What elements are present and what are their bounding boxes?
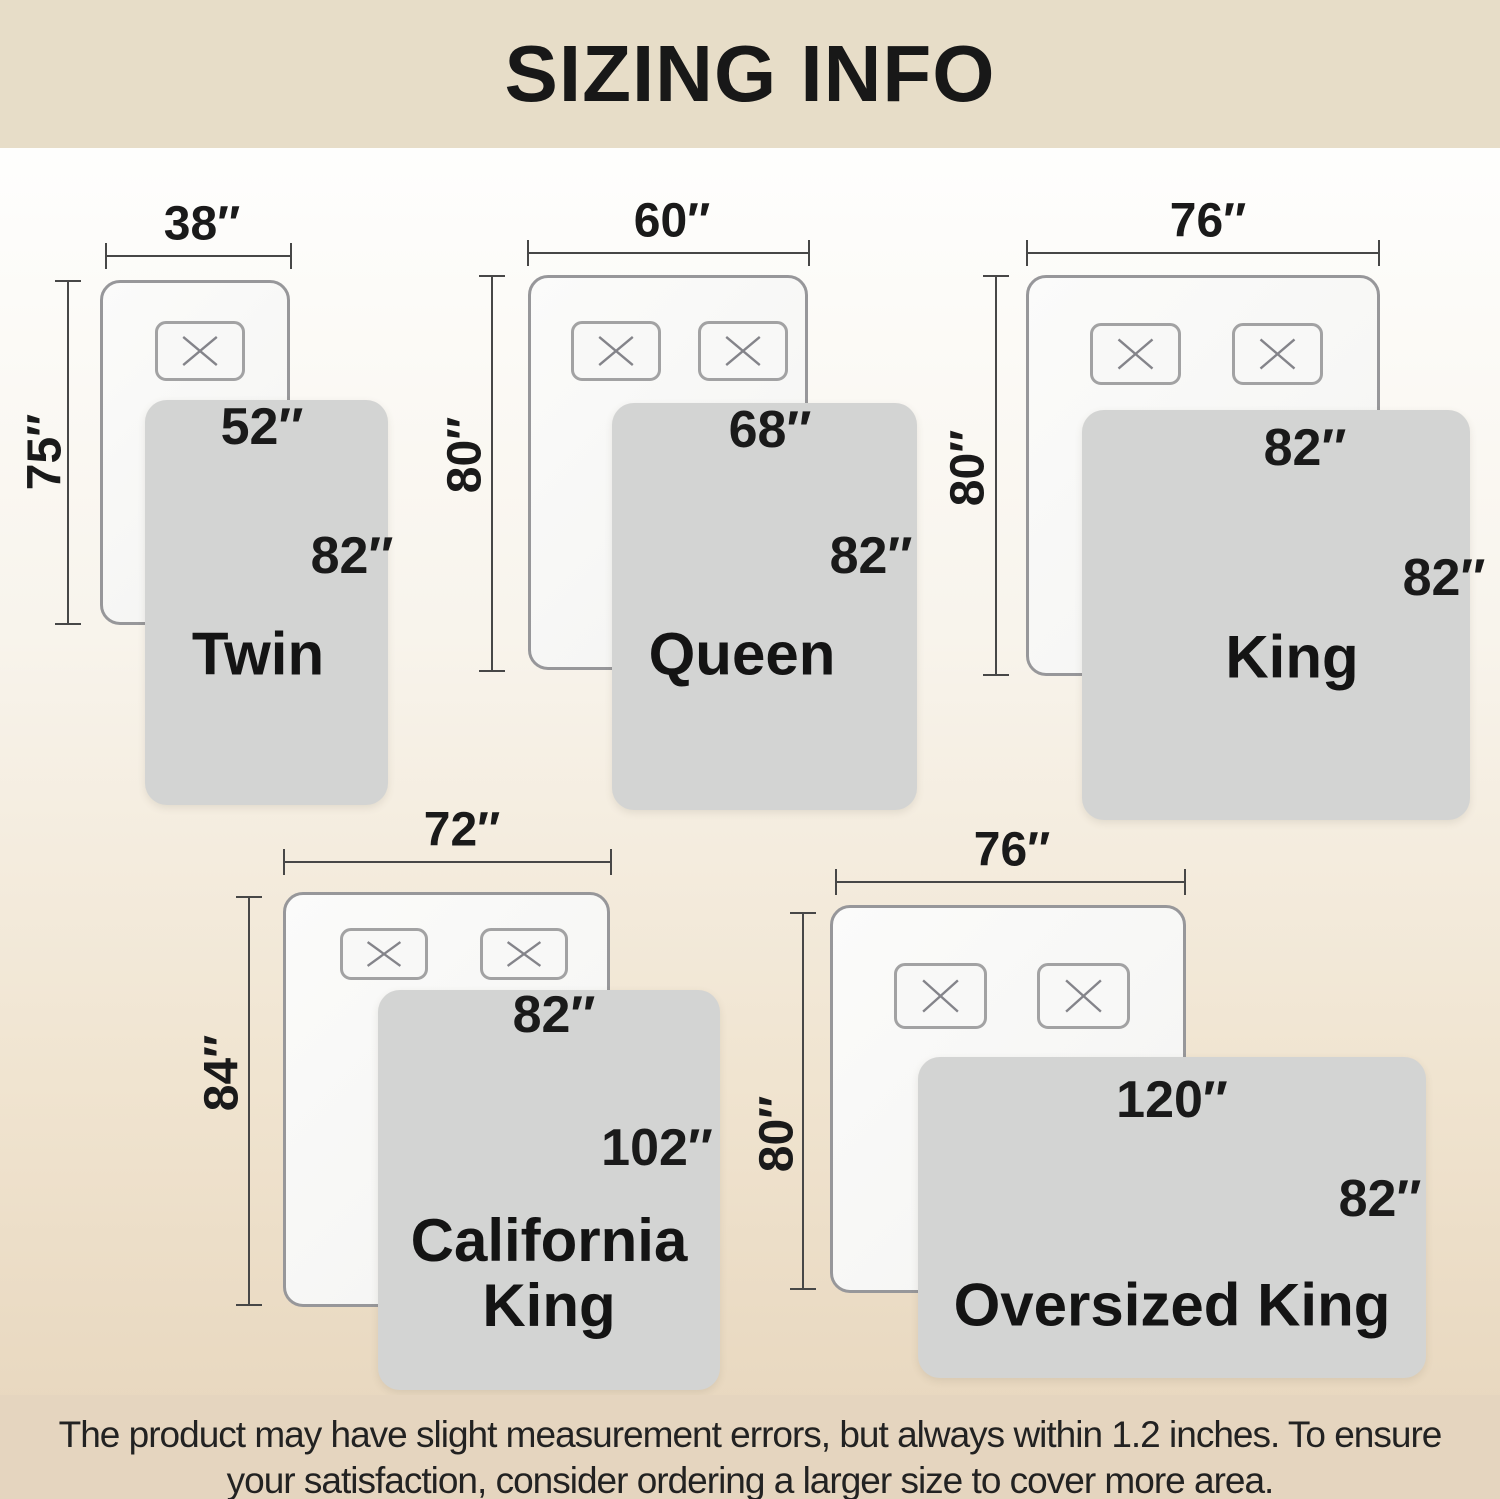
blanket-width-label: 82″ — [513, 985, 596, 1045]
dimension-tick — [55, 623, 81, 625]
bed-name-label: Twin — [192, 623, 324, 688]
blanket-width-label: 120″ — [1116, 1070, 1228, 1130]
dimension-rule — [283, 861, 612, 863]
blanket-width-label: 68″ — [729, 400, 812, 460]
mattress-length-label: 84″ — [195, 1035, 250, 1111]
dimension-tick — [983, 674, 1009, 676]
mattress-length-label: 80″ — [438, 417, 493, 493]
mattress-width-label: 72″ — [424, 803, 500, 858]
dimension-tick — [290, 243, 292, 269]
dimension-rule — [105, 255, 292, 257]
pillow-icon — [894, 963, 987, 1029]
blanket-length-label: 82″ — [1403, 548, 1486, 608]
blanket-length-label: 82″ — [311, 526, 394, 586]
blanket-width-label: 82″ — [1264, 418, 1347, 478]
mattress-length-label: 80″ — [941, 430, 996, 506]
footer-banner: The product may have slight measurement … — [0, 1395, 1500, 1499]
bed-name-label: King — [1225, 626, 1358, 691]
pillow-icon — [155, 321, 245, 381]
mattress-length-label: 80″ — [750, 1096, 805, 1172]
blanket-width-label: 52″ — [221, 397, 304, 457]
pillow-icon — [340, 928, 428, 980]
dimension-tick — [236, 1304, 262, 1306]
dimension-rule — [527, 252, 810, 254]
page-title: SIZING INFO — [505, 28, 996, 120]
dimension-tick — [790, 1288, 816, 1290]
pillow-icon — [480, 928, 568, 980]
bed-name-label: Oversized King — [937, 1274, 1407, 1339]
mattress-width-label: 38″ — [164, 197, 240, 252]
mattress-width-label: 76″ — [974, 823, 1050, 878]
blanket-length-label: 102″ — [601, 1118, 713, 1178]
blanket-length-label: 82″ — [1339, 1169, 1422, 1229]
pillow-icon — [1232, 323, 1323, 385]
mattress-length-label: 75″ — [18, 414, 73, 490]
dimension-tick — [1378, 240, 1380, 266]
bed-name-label: Queen — [649, 623, 836, 688]
pillow-icon — [1090, 323, 1181, 385]
blanket-shape — [612, 403, 917, 810]
mattress-width-label: 60″ — [634, 194, 710, 249]
dimension-tick — [808, 240, 810, 266]
dimension-tick — [610, 849, 612, 875]
disclaimer-text: The product may have slight measurement … — [40, 1412, 1460, 1499]
sizing-infographic: SIZING INFO 38″ 75″ 52″ 82″ Twin — [0, 0, 1500, 1499]
dimension-tick — [1184, 869, 1186, 895]
dimension-tick — [479, 670, 505, 672]
pillow-icon — [571, 321, 661, 381]
mattress-width-label: 76″ — [1170, 194, 1246, 249]
dimension-rule — [1026, 252, 1380, 254]
header-banner: SIZING INFO — [0, 0, 1500, 148]
pillow-icon — [1037, 963, 1130, 1029]
dimension-rule — [835, 881, 1186, 883]
blanket-length-label: 82″ — [830, 526, 913, 586]
pillow-icon — [698, 321, 788, 381]
blanket-shape — [145, 400, 388, 805]
bed-name-label: California King — [369, 1209, 729, 1339]
